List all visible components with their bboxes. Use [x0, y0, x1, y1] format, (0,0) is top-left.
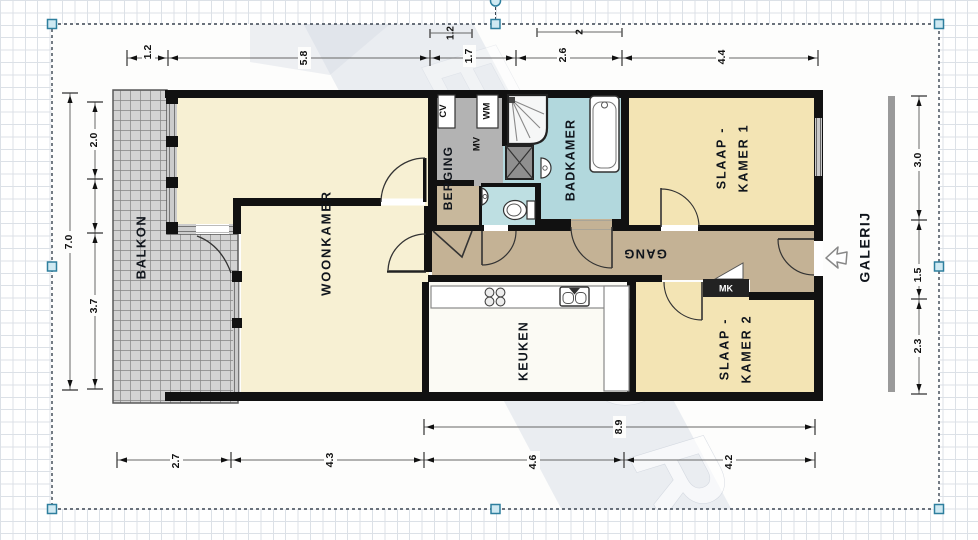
- svg-text:CV: CV: [438, 104, 449, 118]
- svg-text:7.0: 7.0: [63, 235, 75, 250]
- svg-text:WOONKAMER: WOONKAMER: [318, 190, 333, 296]
- svg-text:3.0: 3.0: [912, 153, 924, 168]
- svg-text:2.3: 2.3: [912, 339, 924, 354]
- svg-text:S: S: [662, 512, 805, 540]
- svg-text:1.2: 1.2: [142, 45, 154, 60]
- svg-text:4.3: 4.3: [324, 453, 336, 468]
- svg-text:3.7: 3.7: [88, 299, 100, 314]
- svg-text:2.7: 2.7: [170, 454, 182, 469]
- svg-text:2.6: 2.6: [557, 48, 569, 63]
- svg-text:MK: MK: [719, 283, 733, 293]
- svg-text:KAMER 1: KAMER 1: [736, 124, 750, 193]
- svg-text:1.5: 1.5: [912, 268, 924, 283]
- svg-text:KEUKEN: KEUKEN: [516, 321, 530, 381]
- svg-text:BERGING: BERGING: [441, 146, 455, 210]
- svg-text:MV: MV: [472, 136, 483, 151]
- svg-text:KAMER 2: KAMER 2: [739, 315, 753, 384]
- svg-text:WM: WM: [482, 102, 493, 119]
- svg-text:BALKON: BALKON: [133, 215, 148, 280]
- svg-text:1.2: 1.2: [446, 26, 457, 40]
- svg-text:GANG: GANG: [623, 247, 667, 262]
- svg-text:SLAAP -: SLAAP -: [717, 318, 731, 380]
- svg-text:4.6: 4.6: [527, 455, 539, 470]
- svg-text:2.0: 2.0: [88, 133, 100, 148]
- svg-text:8.9: 8.9: [613, 420, 625, 435]
- svg-text:4.4: 4.4: [716, 50, 728, 65]
- svg-text:GALERIJ: GALERIJ: [857, 211, 873, 282]
- svg-text:5.8: 5.8: [298, 51, 310, 66]
- svg-text:4.2: 4.2: [723, 455, 735, 470]
- svg-text:SLAAP -: SLAAP -: [714, 127, 728, 189]
- svg-text:1.7: 1.7: [463, 49, 475, 64]
- svg-text:BADKAMER: BADKAMER: [563, 119, 577, 202]
- svg-text:2: 2: [575, 29, 586, 35]
